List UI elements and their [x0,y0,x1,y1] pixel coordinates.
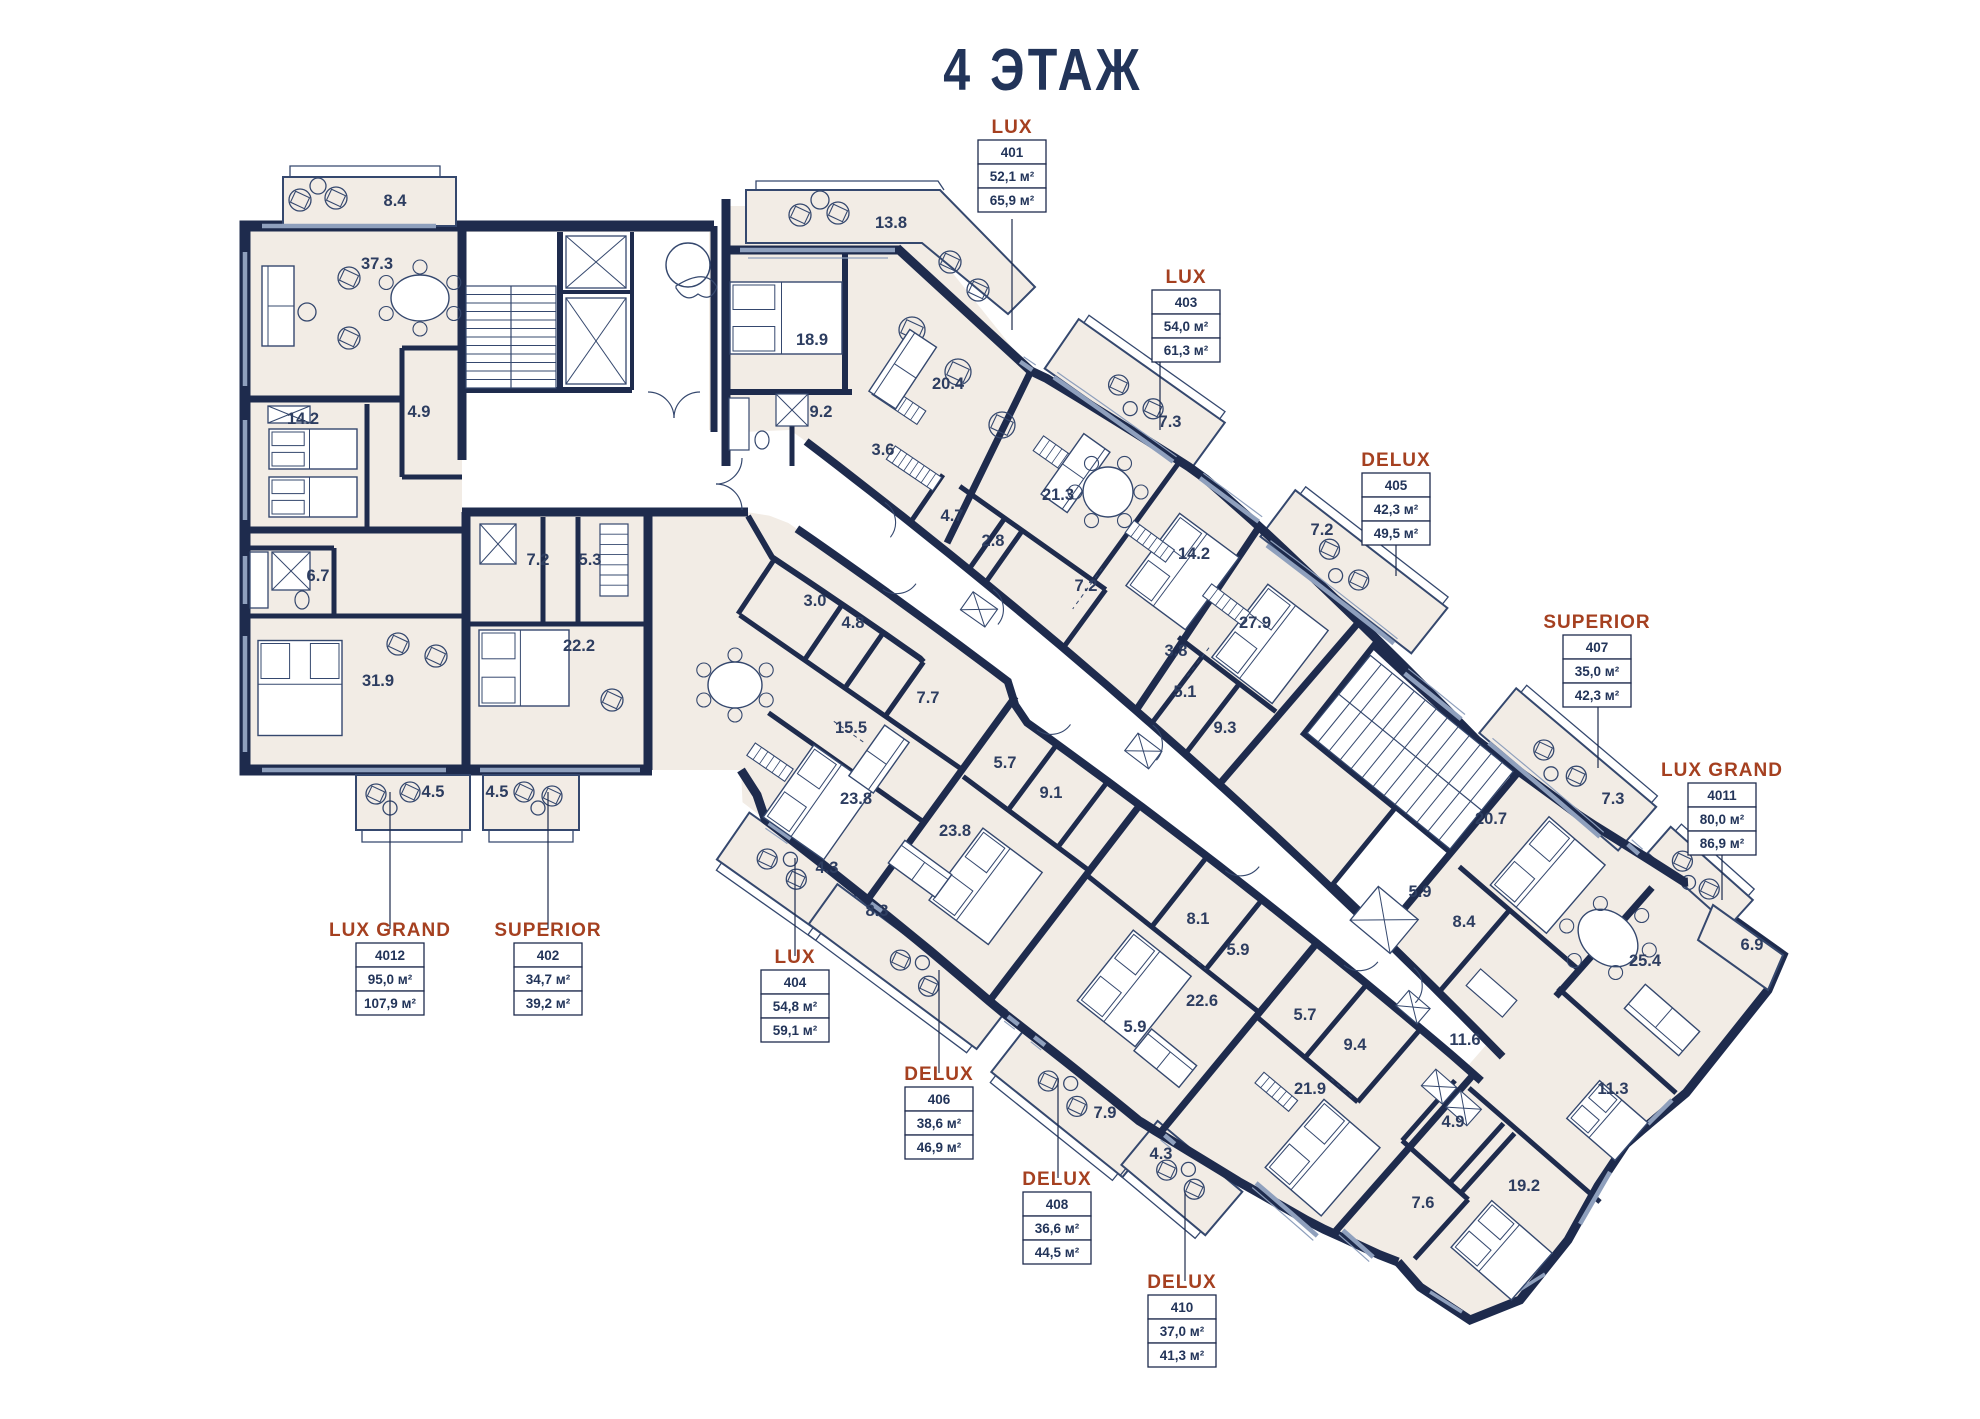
svg-text:52,1 м²: 52,1 м² [990,169,1035,184]
svg-text:7.6: 7.6 [1412,1194,1435,1212]
svg-text:405: 405 [1385,478,1408,493]
svg-text:5.9: 5.9 [1124,1018,1147,1036]
svg-text:7.3: 7.3 [1602,790,1625,808]
svg-text:4012: 4012 [375,948,405,963]
svg-text:8.1: 8.1 [1187,910,1210,928]
svg-text:46,9 м²: 46,9 м² [917,1140,962,1155]
svg-text:37.3: 37.3 [361,255,393,273]
svg-text:401: 401 [1001,145,1024,160]
svg-text:7.9: 7.9 [1094,1104,1117,1122]
svg-text:4 ЭТАЖ: 4 ЭТАЖ [943,38,1143,104]
svg-text:86,9 м²: 86,9 м² [1700,836,1745,851]
svg-text:23.8: 23.8 [939,822,971,840]
svg-text:41,3 м²: 41,3 м² [1160,1348,1205,1363]
svg-text:8.4: 8.4 [1453,913,1477,931]
svg-text:27.9: 27.9 [1239,614,1271,632]
svg-text:11.3: 11.3 [1597,1080,1628,1098]
svg-text:SUPERIOR: SUPERIOR [1543,612,1650,633]
svg-text:14.2: 14.2 [1178,545,1210,563]
svg-text:5.7: 5.7 [994,754,1017,772]
svg-text:6.7: 6.7 [307,567,330,585]
svg-text:DELUX: DELUX [1147,1272,1216,1293]
svg-text:408: 408 [1046,1197,1069,1212]
svg-text:406: 406 [928,1092,951,1107]
svg-text:14.2: 14.2 [287,410,319,428]
svg-text:37,0 м²: 37,0 м² [1160,1324,1205,1339]
svg-text:15.5: 15.5 [835,719,867,737]
svg-text:3.8: 3.8 [1165,642,1188,660]
svg-text:407: 407 [1586,640,1609,655]
svg-text:4.5: 4.5 [422,783,445,801]
svg-text:80,0 м²: 80,0 м² [1700,812,1745,827]
svg-text:404: 404 [784,975,807,990]
svg-text:3.6: 3.6 [872,441,895,459]
svg-text:19.2: 19.2 [1508,1177,1540,1195]
svg-text:4.7: 4.7 [941,507,964,525]
svg-text:9.3: 9.3 [1214,719,1237,737]
svg-text:7.2: 7.2 [527,551,550,569]
svg-text:31.9: 31.9 [362,672,394,690]
svg-text:21.3: 21.3 [1042,486,1074,504]
svg-text:LUX GRAND: LUX GRAND [1661,760,1783,781]
svg-text:54,8 м²: 54,8 м² [773,999,818,1014]
svg-text:42,3 м²: 42,3 м² [1575,688,1620,703]
svg-text:7.7: 7.7 [917,689,940,707]
svg-text:402: 402 [537,948,560,963]
svg-text:38,6 м²: 38,6 м² [917,1116,962,1131]
svg-text:44,5 м²: 44,5 м² [1035,1245,1080,1260]
svg-text:35,0 м²: 35,0 м² [1575,664,1620,679]
svg-text:2.8: 2.8 [982,532,1005,550]
svg-text:5.3: 5.3 [579,551,602,569]
svg-text:3.0: 3.0 [804,592,827,610]
svg-text:54,0 м²: 54,0 м² [1164,319,1209,334]
svg-text:9.4: 9.4 [1344,1036,1368,1054]
svg-text:9.1: 9.1 [1040,784,1063,802]
svg-text:LUX: LUX [1166,267,1207,288]
svg-text:4.3: 4.3 [816,859,839,877]
svg-text:13.8: 13.8 [875,214,907,232]
svg-text:95,0 м²: 95,0 м² [368,972,413,987]
svg-text:DELUX: DELUX [1022,1169,1091,1190]
svg-text:LUX: LUX [992,117,1033,138]
svg-text:4011: 4011 [1707,788,1737,803]
svg-text:DELUX: DELUX [1361,450,1430,471]
svg-text:8.3: 8.3 [866,902,889,920]
svg-text:61,3 м²: 61,3 м² [1164,343,1209,358]
svg-text:5.9: 5.9 [1409,883,1432,901]
svg-text:36,6 м²: 36,6 м² [1035,1221,1080,1236]
svg-text:4.5: 4.5 [486,783,509,801]
svg-text:8.4: 8.4 [384,192,408,210]
svg-text:20.7: 20.7 [1475,810,1507,828]
svg-text:6.9: 6.9 [1741,936,1764,954]
svg-text:22.2: 22.2 [563,637,595,655]
svg-text:34,7 м²: 34,7 м² [526,972,571,987]
svg-text:5.9: 5.9 [1227,941,1250,959]
svg-text:107,9 м²: 107,9 м² [364,996,417,1011]
svg-text:18.9: 18.9 [796,331,828,349]
svg-text:5.7: 5.7 [1294,1006,1317,1024]
svg-text:9.2: 9.2 [810,403,833,421]
svg-text:25.4: 25.4 [1629,952,1662,970]
svg-text:4.9: 4.9 [408,403,431,421]
svg-text:42,3 м²: 42,3 м² [1374,502,1419,517]
svg-text:4.9: 4.9 [1442,1113,1465,1131]
svg-text:21.9: 21.9 [1294,1080,1326,1098]
svg-text:7.2: 7.2 [1311,521,1334,539]
svg-text:410: 410 [1171,1300,1194,1315]
svg-text:20.4: 20.4 [932,375,965,393]
svg-text:4.3: 4.3 [1150,1145,1173,1163]
svg-text:403: 403 [1175,295,1198,310]
svg-text:11.6: 11.6 [1449,1031,1480,1049]
svg-text:7.3: 7.3 [1159,413,1182,431]
svg-text:4.8: 4.8 [842,614,865,632]
svg-text:49,5 м²: 49,5 м² [1374,526,1419,541]
svg-text:5.1: 5.1 [1174,683,1197,701]
svg-text:39,2 м²: 39,2 м² [526,996,571,1011]
svg-text:22.6: 22.6 [1186,992,1218,1010]
svg-text:59,1 м²: 59,1 м² [773,1023,818,1038]
svg-text:7.2: 7.2 [1075,577,1098,595]
svg-text:65,9 м²: 65,9 м² [990,193,1035,208]
svg-text:23.8: 23.8 [840,790,872,808]
